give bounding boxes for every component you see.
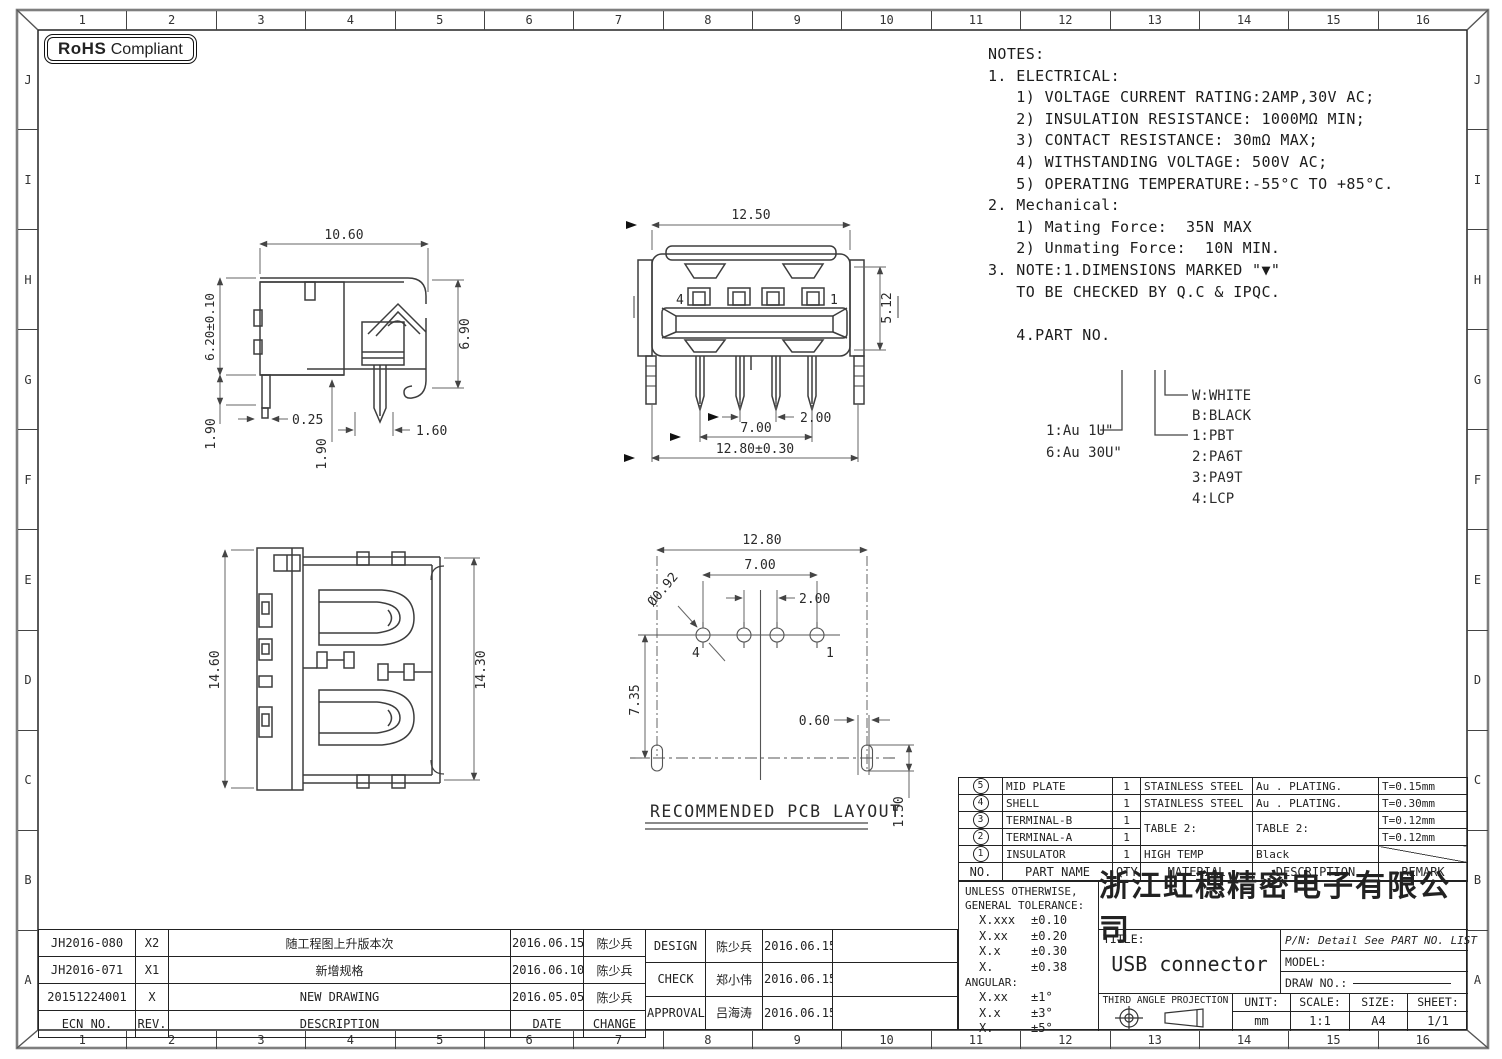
dim-label: 6.90 [458, 318, 473, 349]
list-item: G [1467, 329, 1488, 429]
rohs-badge: RoHS Compliant [44, 34, 197, 64]
bom-remark: T=0.30mm [1379, 795, 1468, 812]
pin-label-4: 4 [692, 646, 700, 661]
bom-item-no: 1 [973, 846, 989, 862]
bom-part-name: TERMINAL-A [1003, 829, 1113, 846]
bom-material-merged: TABLE 2: [1141, 812, 1253, 846]
ecn-no: JH2016-071 [39, 957, 136, 984]
rev-header: ECN NO. [39, 1011, 136, 1038]
legend-plating-2: 6:Au 30U" [1046, 445, 1122, 461]
list-item: H [1467, 229, 1488, 329]
rev-header: CHANGE [584, 1011, 646, 1038]
side-view-dimlines [220, 244, 464, 442]
bom-item-no: 2 [973, 829, 989, 845]
list-item: 11 [931, 11, 1020, 30]
pin-label-1: 1 [830, 293, 838, 308]
list-item: 4 [305, 11, 394, 30]
scale-value: 1:1 [1291, 1012, 1349, 1031]
list-item: C [18, 730, 38, 830]
table-row: JH2016-080 X2 随工程图上升版本次 2016.06.15 陈少兵 [39, 930, 646, 957]
bom-remark: T=0.15mm [1379, 778, 1468, 795]
scale-label: SCALE: [1291, 994, 1349, 1012]
list-item: 9 [752, 1031, 841, 1049]
rev-description: 随工程图上升版本次 [169, 930, 511, 957]
part-number-legend: 1:Au 1U" 6:Au 30U" W:WHITE B:BLACK 1:PBT… [1040, 350, 1320, 525]
engineering-drawing-sheet: { "frame": { "top_numbers": ["1","2","3"… [0, 0, 1502, 1059]
sheet-value: 1/1 [1408, 1012, 1468, 1031]
list-item: 1) Mating Force: 35N MAX [988, 217, 1394, 239]
dim-label: 1.90 [204, 418, 219, 449]
list-item: F [18, 429, 38, 529]
signoff-date: 2016.06.15 [763, 963, 833, 996]
signoff-date: 2016.06.15 [763, 930, 833, 963]
bom-header: NO. [959, 863, 1003, 882]
list-item: A [18, 930, 38, 1030]
zone-band-left: JIHGFEDCBA [18, 30, 38, 1030]
list-item: J [18, 30, 38, 129]
dim-label: 12.80 [742, 533, 781, 548]
bom-material: STAINLESS STEEL [1141, 778, 1253, 795]
list-item: 16 [1378, 11, 1467, 30]
table-row: 20151224001 X NEW DRAWING 2016.05.05 陈少兵 [39, 984, 646, 1011]
top-view-dimlines [225, 550, 480, 788]
bom-remark-blank [1379, 846, 1468, 863]
table-row: 4 SHELL 1 STAINLESS STEEL Au . PLATING. … [959, 795, 1468, 812]
bom-header: PART NAME [1003, 863, 1113, 882]
bom-item-no: 5 [973, 778, 989, 794]
list-item: 10 [841, 11, 930, 30]
size-value: A4 [1350, 1012, 1407, 1031]
legend-color-1: W:WHITE [1192, 388, 1251, 404]
dim-label: 0.60 [799, 714, 830, 729]
signoff-name: 吕海涛 [706, 996, 763, 1029]
revision-header-row: ECN NO. REV. DESCRIPTION DATE CHANGE [39, 1011, 646, 1038]
angular-label: ANGULAR: [965, 976, 1098, 990]
list-item: 16 [1378, 1031, 1467, 1049]
bom-description: Black [1253, 846, 1379, 863]
front-view: 12.50 5.12 2.00 7.00 12.80±0.30 4 1 [608, 200, 930, 490]
list-item: 10 [841, 1031, 930, 1049]
list-item: 8 [663, 11, 752, 30]
table-row: JH2016-071 X1 新增规格 2016.06.10 陈少兵 [39, 957, 646, 984]
part-number-ref: P/N: Detail See PART NO. LIST [1281, 930, 1468, 951]
dim-label: 1.60 [416, 424, 447, 439]
draw-no-label: DRAW NO.: [1285, 976, 1347, 990]
dim-label: 2.00 [799, 592, 830, 607]
bom-qty: 1 [1113, 812, 1141, 829]
signoff-role: APPROVAL [646, 996, 706, 1029]
table-row: APPROVAL 吕海涛 2016.06.15 [646, 996, 958, 1029]
dim-label: 10.60 [324, 228, 363, 243]
side-view-outline [254, 278, 426, 422]
tolerance-line: GENERAL TOLERANCE: [965, 899, 1098, 913]
table-row: 5 MID PLATE 1 STAINLESS STEEL Au . PLATI… [959, 778, 1468, 795]
legend-color-2: B:BLACK [1192, 408, 1252, 424]
pn-model-draw-stack: P/N: Detail See PART NO. LIST MODEL: DRA… [1281, 930, 1468, 994]
list-item: D [1467, 630, 1488, 730]
legend-material-2: 2:PA6T [1192, 449, 1243, 465]
unit-value: mm [1233, 1012, 1290, 1031]
title-label: TITLE: [1099, 930, 1280, 946]
dim-label: 14.60 [208, 650, 223, 689]
list-item: NOTES: [988, 44, 1394, 66]
rev: X2 [136, 930, 169, 957]
rev-change: 陈少兵 [584, 957, 646, 984]
bom-qty: 1 [1113, 778, 1141, 795]
bom-description: Au . PLATING. [1253, 778, 1379, 795]
dim-label: 7.00 [740, 421, 771, 436]
dim-label: 2.00 [800, 411, 831, 426]
bom-remark: T=0.12mm [1379, 829, 1468, 846]
rev-date: 2016.06.15 [511, 930, 584, 957]
rev-date: 2016.05.05 [511, 984, 584, 1011]
bom-item-no: 4 [973, 795, 989, 811]
legend-material-3: 3:PA9T [1192, 470, 1243, 486]
list-item: 5 [395, 11, 484, 30]
list-item: 7 [573, 11, 662, 30]
list-item: 3) CONTACT RESISTANCE: 30mΩ MAX; [988, 130, 1394, 152]
front-view-outline [634, 246, 898, 410]
bom-material: HIGH TEMP [1141, 846, 1253, 863]
bom-qty: 1 [1113, 795, 1141, 812]
company-name: 浙江虹穗精密电子有限公司 [1099, 881, 1468, 930]
list-item: B [1467, 830, 1488, 930]
top-view-outline [257, 548, 444, 790]
table-row: 3 TERMINAL-B 1 TABLE 2: TABLE 2: T=0.12m… [959, 812, 1468, 829]
tolerance-line: UNLESS OTHERWISE, [965, 885, 1098, 899]
table-row: DESIGN 陈少兵 2016.06.15 [646, 930, 958, 963]
title-block: UNLESS OTHERWISE, GENERAL TOLERANCE: X.x… [958, 880, 1467, 1030]
list-item: D [18, 630, 38, 730]
bom-part-name: TERMINAL-B [1003, 812, 1113, 829]
side-view: 10.60 6.20±0.10 6.90 1.90 0.25 1.90 1.60 [192, 212, 492, 474]
rev-header: DATE [511, 1011, 584, 1038]
dim-label: 7.00 [744, 558, 775, 573]
rev-header: DESCRIPTION [169, 1011, 511, 1038]
projection-cell: THIRD ANGLE PROJECTION [1099, 994, 1233, 1031]
list-item: 4.PART NO. [988, 325, 1394, 347]
list-item: E [1467, 529, 1488, 629]
list-item: 12 [1020, 11, 1109, 30]
list-item: 5) OPERATING TEMPERATURE:-55°C TO +85°C. [988, 174, 1394, 196]
rohs-badge-text: Compliant [111, 41, 183, 58]
list-item: C [1467, 730, 1488, 830]
bom-qty: 1 [1113, 829, 1141, 846]
ecn-no: 20151224001 [39, 984, 136, 1011]
top-view: 14.60 14.30 [192, 530, 497, 812]
bom-part-name: SHELL [1003, 795, 1113, 812]
pcb-geometry [630, 590, 896, 780]
rev: X1 [136, 957, 169, 984]
list-item: E [18, 529, 38, 629]
bom-description-merged: TABLE 2: [1253, 812, 1379, 846]
list-item: 8 [663, 1031, 752, 1049]
list-item: 1 [38, 11, 126, 30]
list-item: 2. Mechanical: [988, 195, 1394, 217]
signoff-name: 郑小伟 [706, 963, 763, 996]
list-item: 15 [1288, 1031, 1377, 1049]
signoff-blank [833, 963, 958, 996]
dim-label: 0.25 [292, 413, 323, 428]
list-item: 15 [1288, 11, 1377, 30]
dim-label: 14.30 [474, 650, 489, 689]
size-label: SIZE: [1350, 994, 1407, 1012]
legend-material-1: 1:PBT [1192, 428, 1235, 444]
rohs-badge-bold: RoHS [58, 39, 106, 58]
legend-plating-1: 1:Au 1U" [1046, 423, 1113, 439]
signoff-role: CHECK [646, 963, 706, 996]
bom-item-no: 3 [973, 812, 989, 828]
list-item: 3 [216, 11, 305, 30]
rev-date: 2016.06.10 [511, 957, 584, 984]
dim-label: Ø0.92 [645, 570, 682, 610]
signoff-table: DESIGN 陈少兵 2016.06.15 CHECK 郑小伟 2016.06.… [645, 929, 958, 1030]
model-label: MODEL: [1281, 951, 1468, 972]
unit-label: UNIT: [1233, 994, 1290, 1012]
dim-label: 1.90 [315, 438, 330, 469]
list-item: 3. NOTE:1.DIMENSIONS MARKED "▼" [988, 260, 1394, 282]
third-angle-projection-icon [1099, 1006, 1231, 1030]
rev-header: REV. [136, 1011, 169, 1038]
table-row: CHECK 郑小伟 2016.06.15 [646, 963, 958, 996]
list-item: 4) WITHSTANDING VOLTAGE: 500V AC; [988, 152, 1394, 174]
draw-no-blank-line [1353, 983, 1451, 984]
notes-block: NOTES:1. ELECTRICAL: 1) VOLTAGE CURRENT … [988, 44, 1394, 346]
dim-label: 12.80±0.30 [716, 442, 794, 457]
list-item [988, 303, 1394, 325]
table-row: 1 INSULATOR 1 HIGH TEMP Black [959, 846, 1468, 863]
pin-label-4: 4 [676, 293, 684, 308]
list-item: J [1467, 30, 1488, 129]
list-item: I [18, 129, 38, 229]
rev-change: 陈少兵 [584, 984, 646, 1011]
scale-strip: UNIT: mm SCALE: 1:1 SIZE: A4 SHEET: 1/1 [1233, 994, 1468, 1031]
rev-description: NEW DRAWING [169, 984, 511, 1011]
signoff-blank [833, 996, 958, 1029]
dim-label: 7.35 [628, 684, 643, 715]
list-item: I [1467, 129, 1488, 229]
list-item: B [18, 830, 38, 930]
list-item: 1. ELECTRICAL: [988, 66, 1394, 88]
signoff-name: 陈少兵 [706, 930, 763, 963]
legend-material-4: 4:LCP [1192, 491, 1234, 507]
zone-band-right: JIHGFEDCBA [1467, 30, 1488, 1030]
list-item: 6 [484, 11, 573, 30]
signoff-role: DESIGN [646, 930, 706, 963]
bom-remark: T=0.12mm [1379, 812, 1468, 829]
pin-label-1: 1 [826, 646, 834, 661]
list-item: 14 [1199, 11, 1288, 30]
bom-description: Au . PLATING. [1253, 795, 1379, 812]
tolerance-block: UNLESS OTHERWISE, GENERAL TOLERANCE: X.x… [959, 881, 1099, 1031]
list-item: G [18, 329, 38, 429]
drawing-title: USB connector [1099, 952, 1280, 976]
revision-table: JH2016-080 X2 随工程图上升版本次 2016.06.15 陈少兵 J… [38, 929, 646, 1038]
bom-qty: 1 [1113, 846, 1141, 863]
rev-change: 陈少兵 [584, 930, 646, 957]
dim-label: 12.50 [731, 208, 770, 223]
list-item: TO BE CHECKED BY Q.C & IPQC. [988, 282, 1394, 304]
list-item: 2) Unmating Force: 10N MIN. [988, 238, 1394, 260]
sheet-label: SHEET: [1408, 994, 1468, 1012]
draw-no-row: DRAW NO.: [1281, 972, 1468, 994]
list-item: 9 [752, 11, 841, 30]
bom-material: STAINLESS STEEL [1141, 795, 1253, 812]
projection-label: THIRD ANGLE PROJECTION [1099, 994, 1232, 1006]
list-item: 2 [126, 11, 215, 30]
list-item: 1) VOLTAGE CURRENT RATING:2AMP,30V AC; [988, 87, 1394, 109]
signoff-blank [833, 930, 958, 963]
list-item: 13 [1110, 11, 1199, 30]
list-item: H [18, 229, 38, 329]
signoff-date: 2016.06.15 [763, 996, 833, 1029]
title-cell: TITLE: USB connector [1099, 930, 1281, 994]
list-item: 2) INSULATION RESISTANCE: 1000MΩ MIN; [988, 109, 1394, 131]
rev: X [136, 984, 169, 1011]
dim-label: 6.20±0.10 [202, 293, 217, 361]
bom-part-name: INSULATOR [1003, 846, 1113, 863]
rev-description: 新增规格 [169, 957, 511, 984]
zone-band-top: 12345678910111213141516 [38, 11, 1467, 30]
ecn-no: JH2016-080 [39, 930, 136, 957]
pcb-layout-view: 12.80 7.00 2.00 Ø0.92 7.35 0.60 1.50 4 1… [600, 530, 932, 835]
dim-label: 5.12 [880, 292, 895, 323]
pcb-layout-caption: RECOMMENDED PCB LAYOUT [650, 802, 902, 821]
bom-part-name: MID PLATE [1003, 778, 1113, 795]
list-item: F [1467, 429, 1488, 529]
